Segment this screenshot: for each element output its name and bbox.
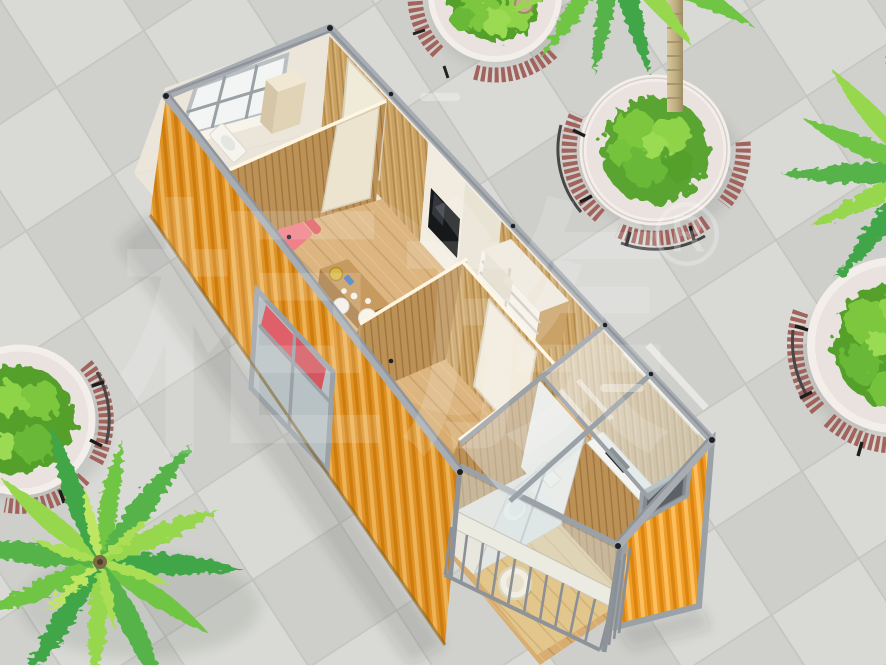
render-canvas: 柜族 ® [0, 0, 886, 665]
registered-mark: ® [643, 184, 731, 287]
render-stage: 柜族 ® [0, 0, 886, 665]
watermark-text: 柜族 [118, 177, 682, 492]
